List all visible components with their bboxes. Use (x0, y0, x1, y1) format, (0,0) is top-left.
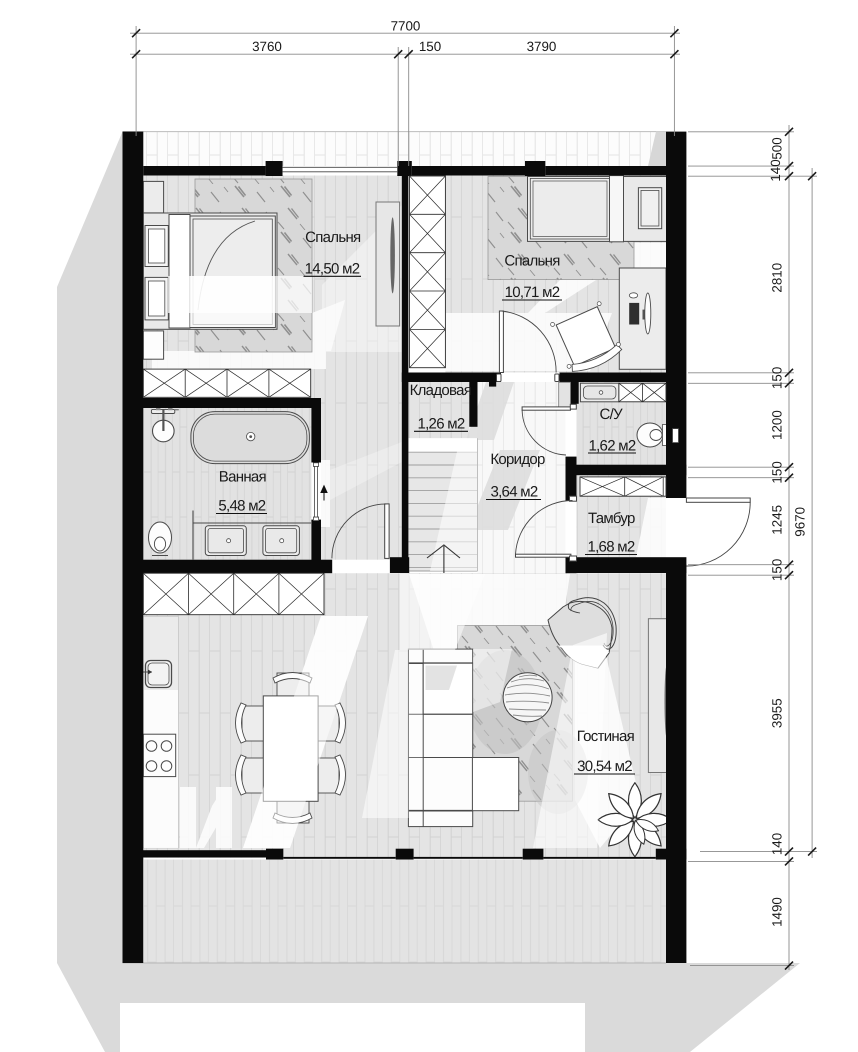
svg-text:1,68 м2: 1,68 м2 (587, 539, 634, 556)
svg-text:2810: 2810 (770, 263, 785, 293)
svg-text:150: 150 (770, 367, 785, 389)
svg-text:1,62 м2: 1,62 м2 (588, 438, 635, 455)
svg-text:Коридор: Коридор (490, 451, 545, 468)
svg-text:140: 140 (770, 833, 785, 855)
svg-text:9670: 9670 (793, 507, 808, 537)
svg-text:150: 150 (419, 39, 441, 54)
svg-text:150: 150 (770, 461, 785, 483)
svg-text:3955: 3955 (770, 698, 785, 728)
svg-text:10,71 м2: 10,71 м2 (505, 284, 560, 301)
svg-text:1,26 м2: 1,26 м2 (417, 416, 464, 433)
svg-text:3790: 3790 (527, 39, 557, 54)
svg-text:7700: 7700 (391, 19, 421, 34)
svg-text:Спальня: Спальня (504, 253, 560, 270)
svg-text:Гостиная: Гостиная (577, 728, 635, 745)
svg-text:500: 500 (770, 137, 785, 159)
svg-text:140: 140 (768, 159, 783, 181)
svg-text:1490: 1490 (770, 897, 785, 927)
svg-text:Ванная: Ванная (219, 469, 267, 486)
svg-text:150: 150 (770, 559, 785, 581)
svg-text:14,50 м2: 14,50 м2 (305, 261, 360, 278)
svg-text:С/У: С/У (599, 406, 623, 423)
svg-text:1245: 1245 (770, 505, 785, 535)
svg-text:3,64 м2: 3,64 м2 (490, 484, 537, 501)
svg-text:Кладовая: Кладовая (410, 382, 472, 399)
svg-text:Тамбур: Тамбур (588, 510, 635, 527)
svg-text:1200: 1200 (770, 410, 785, 440)
svg-text:3760: 3760 (252, 39, 282, 54)
svg-text:30,54 м2: 30,54 м2 (577, 758, 632, 775)
svg-text:5,48 м2: 5,48 м2 (218, 498, 265, 515)
svg-text:Спальня: Спальня (305, 229, 361, 246)
